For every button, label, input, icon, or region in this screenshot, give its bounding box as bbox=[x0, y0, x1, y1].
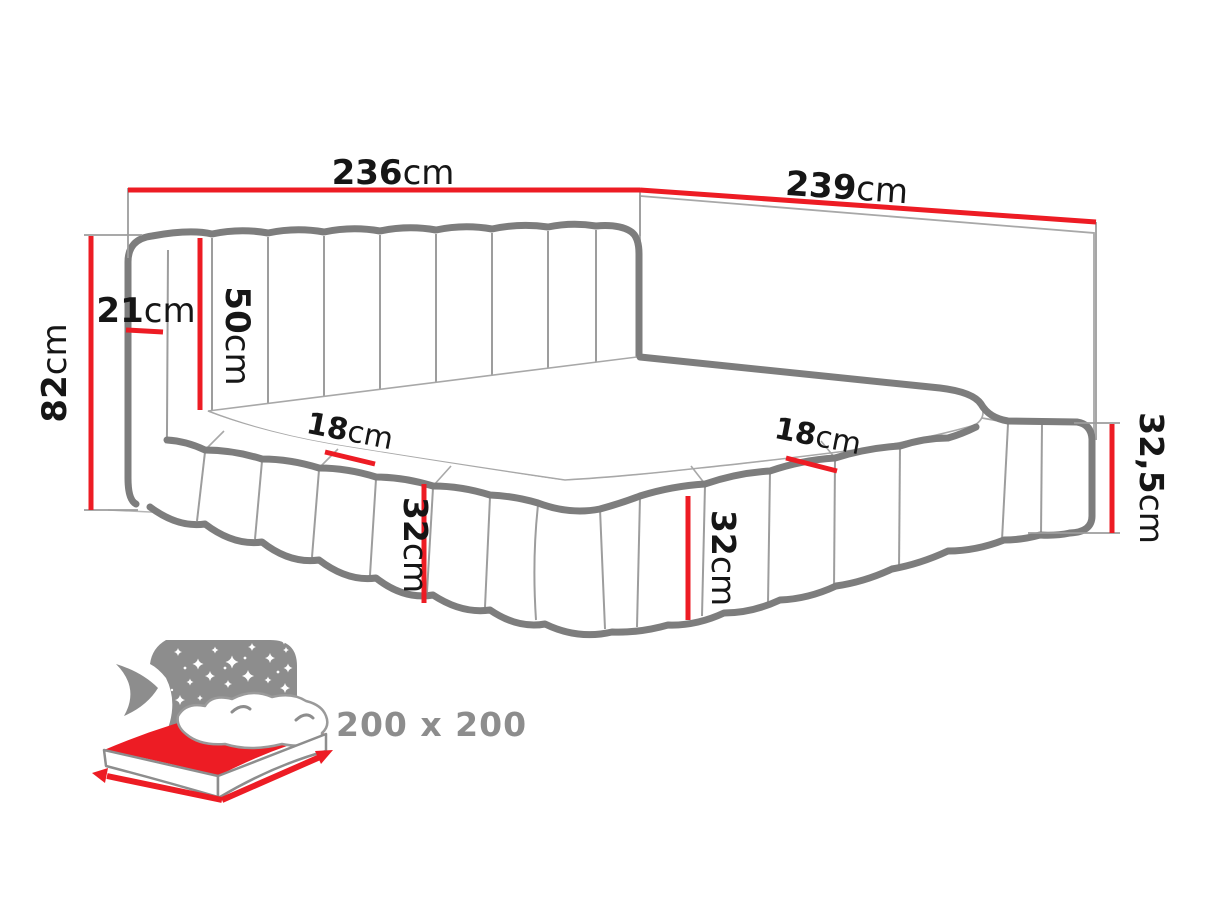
dimension-label: 32cm bbox=[396, 497, 435, 593]
mattress-size-icon: 200 x 200 bbox=[92, 638, 527, 801]
dimension-label: 21cm bbox=[96, 291, 195, 331]
moon-tail-shape bbox=[116, 664, 158, 716]
mattress-size-label: 200 x 200 bbox=[336, 705, 527, 744]
star-dot bbox=[184, 667, 187, 670]
dimension-headboard-depth: 21cm bbox=[96, 291, 195, 332]
frame-seam bbox=[899, 447, 900, 571]
bed-dimension-diagram-page: 236cm 239cm 82cm 21cm 50cm 18cm 18cm 32c… bbox=[0, 0, 1214, 911]
star-dot bbox=[277, 671, 280, 674]
dimension-label: 32cm bbox=[704, 510, 743, 606]
dimension-label: 82cm bbox=[35, 323, 75, 422]
size-arrow-head bbox=[92, 768, 108, 783]
dimension-label: 239cm bbox=[784, 164, 909, 212]
dimension-label: 50cm bbox=[217, 286, 257, 385]
dimension-label: 32,5cm bbox=[1132, 412, 1171, 544]
star-dot bbox=[224, 667, 227, 670]
star-dot bbox=[171, 689, 173, 691]
frame-seam bbox=[834, 459, 835, 589]
star-dot bbox=[244, 657, 247, 660]
frame-seam bbox=[1041, 424, 1042, 535]
dimension-left-rail-height: 32cm bbox=[396, 484, 435, 603]
dimension-label: 236cm bbox=[332, 153, 455, 193]
bed-dimension-diagram: 236cm 239cm 82cm 21cm 50cm 18cm 18cm 32c… bbox=[0, 0, 1214, 911]
